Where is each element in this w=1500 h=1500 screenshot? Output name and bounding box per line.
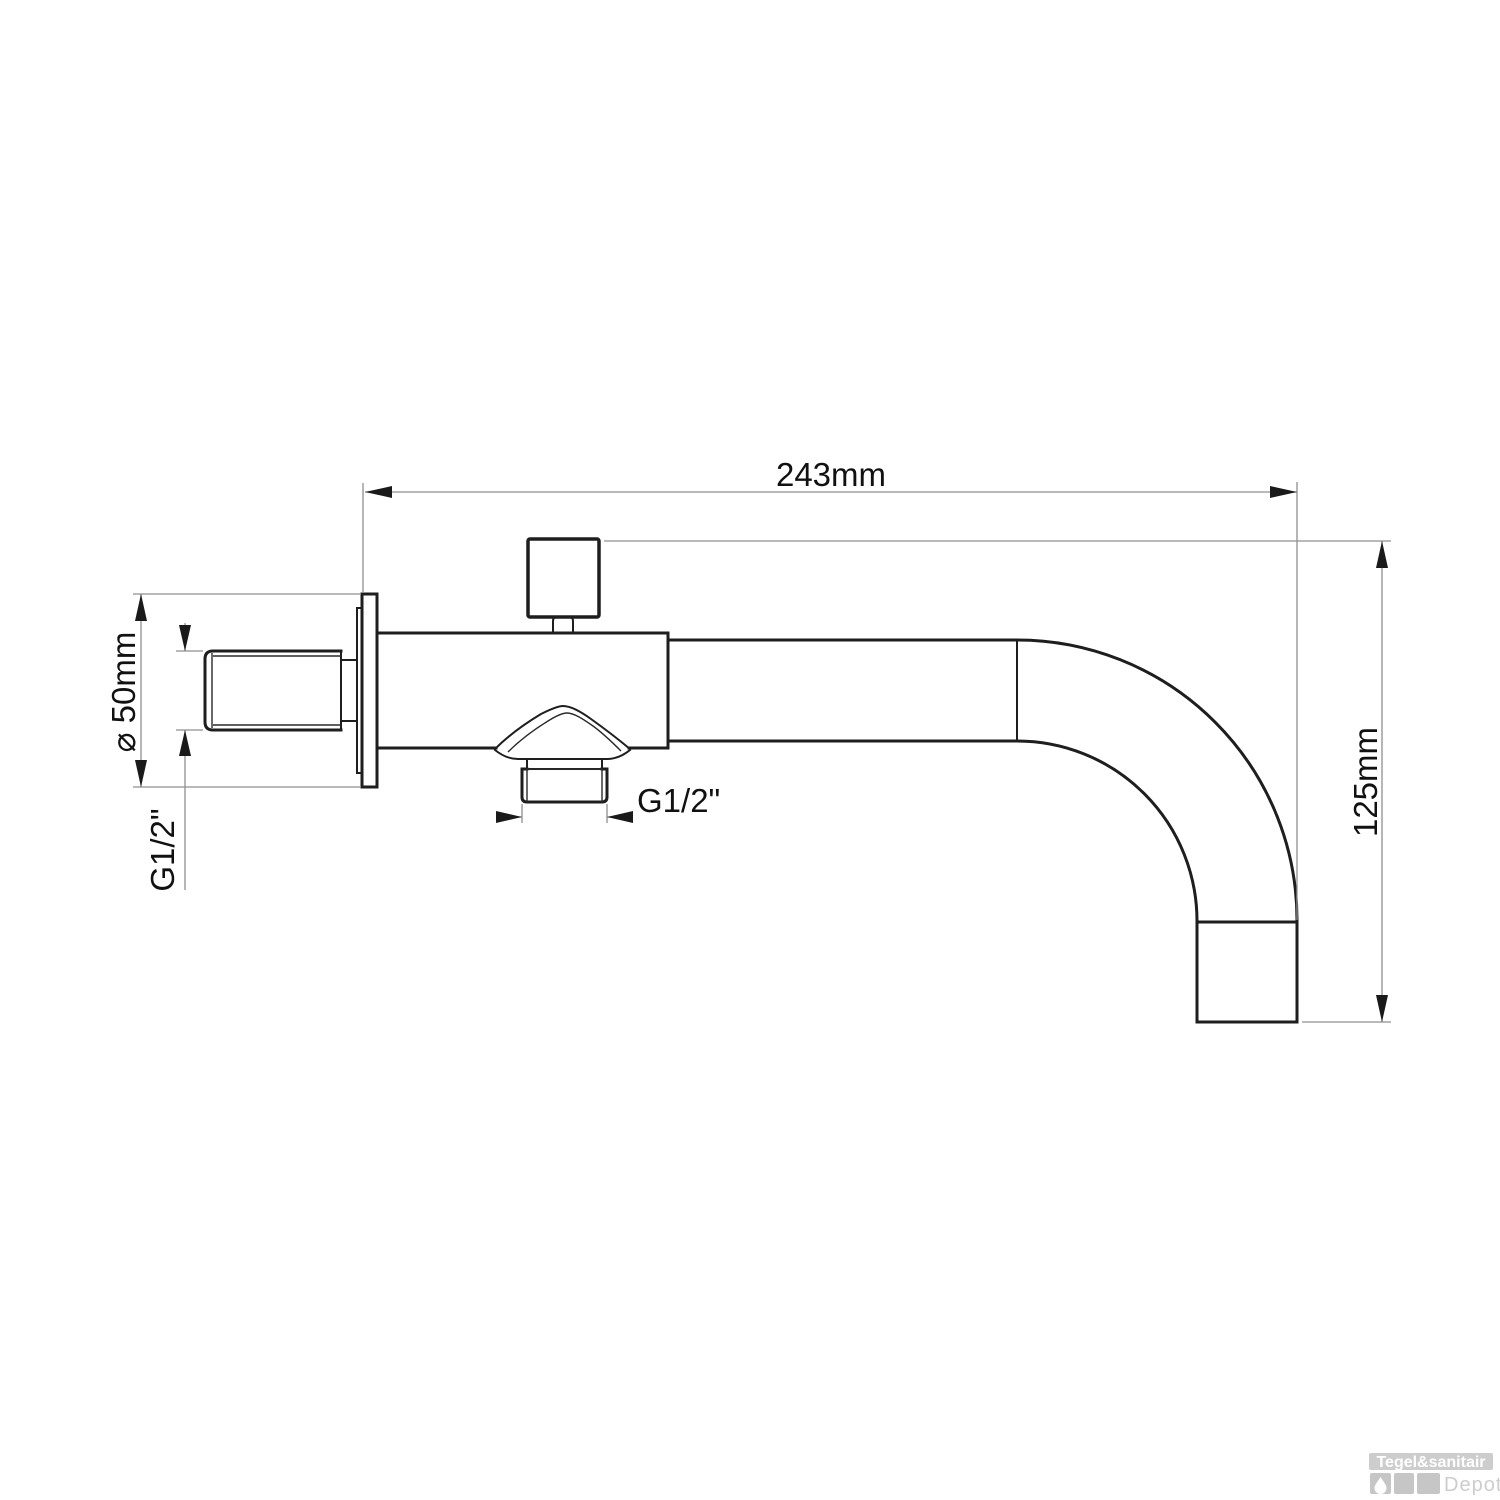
watermark-square bbox=[1417, 1473, 1440, 1494]
arrow-right-icon bbox=[496, 811, 522, 823]
dim-height-label: 125mm bbox=[1347, 727, 1384, 837]
watermark-brand: Tegel&sanitair bbox=[1376, 1454, 1485, 1471]
arrow-up-icon bbox=[1376, 541, 1388, 568]
dim-height: 125mm bbox=[604, 541, 1391, 1022]
arrow-down-icon bbox=[179, 625, 191, 651]
diverter-skirt bbox=[495, 706, 630, 769]
dim-flange-diameter: ⌀ 50mm bbox=[105, 594, 361, 787]
handle-stem bbox=[553, 617, 573, 633]
arrow-up-icon bbox=[135, 594, 147, 621]
bath-spout-drawing: 243mm 125mm ⌀ 50mm G1/2" G1/2" bbox=[0, 0, 1500, 1500]
handle-knob bbox=[528, 539, 599, 617]
dim-wall-thread-label: G1/2" bbox=[144, 808, 181, 891]
wall-flange bbox=[357, 594, 377, 787]
spout-outlet bbox=[1197, 922, 1297, 1022]
dim-flange-diameter-label: ⌀ 50mm bbox=[105, 632, 142, 753]
dim-outlet-thread-label: G1/2" bbox=[637, 782, 720, 819]
watermark: Tegel&sanitair Depot bbox=[1369, 1453, 1500, 1496]
arrow-down-icon bbox=[1376, 995, 1388, 1022]
watermark-suffix: Depot bbox=[1444, 1474, 1500, 1496]
watermark-square bbox=[1394, 1473, 1414, 1494]
spout-bend bbox=[1017, 640, 1297, 922]
arrow-down-icon bbox=[135, 760, 147, 787]
handshower-outlet-nipple bbox=[522, 769, 607, 802]
dim-wall-thread: G1/2" bbox=[144, 623, 203, 892]
valve-body bbox=[377, 633, 668, 748]
arrow-up-icon bbox=[179, 730, 191, 756]
arrow-left-icon bbox=[607, 811, 633, 823]
arrow-right-icon bbox=[1270, 486, 1297, 498]
technical-drawing-page: 243mm 125mm ⌀ 50mm G1/2" G1/2" bbox=[0, 0, 1500, 1500]
dim-width-label: 243mm bbox=[776, 456, 886, 493]
spout-arm bbox=[668, 640, 1017, 741]
dim-width: 243mm bbox=[363, 456, 1297, 920]
arrow-left-icon bbox=[365, 486, 392, 498]
wall-thread-nipple bbox=[205, 651, 357, 730]
